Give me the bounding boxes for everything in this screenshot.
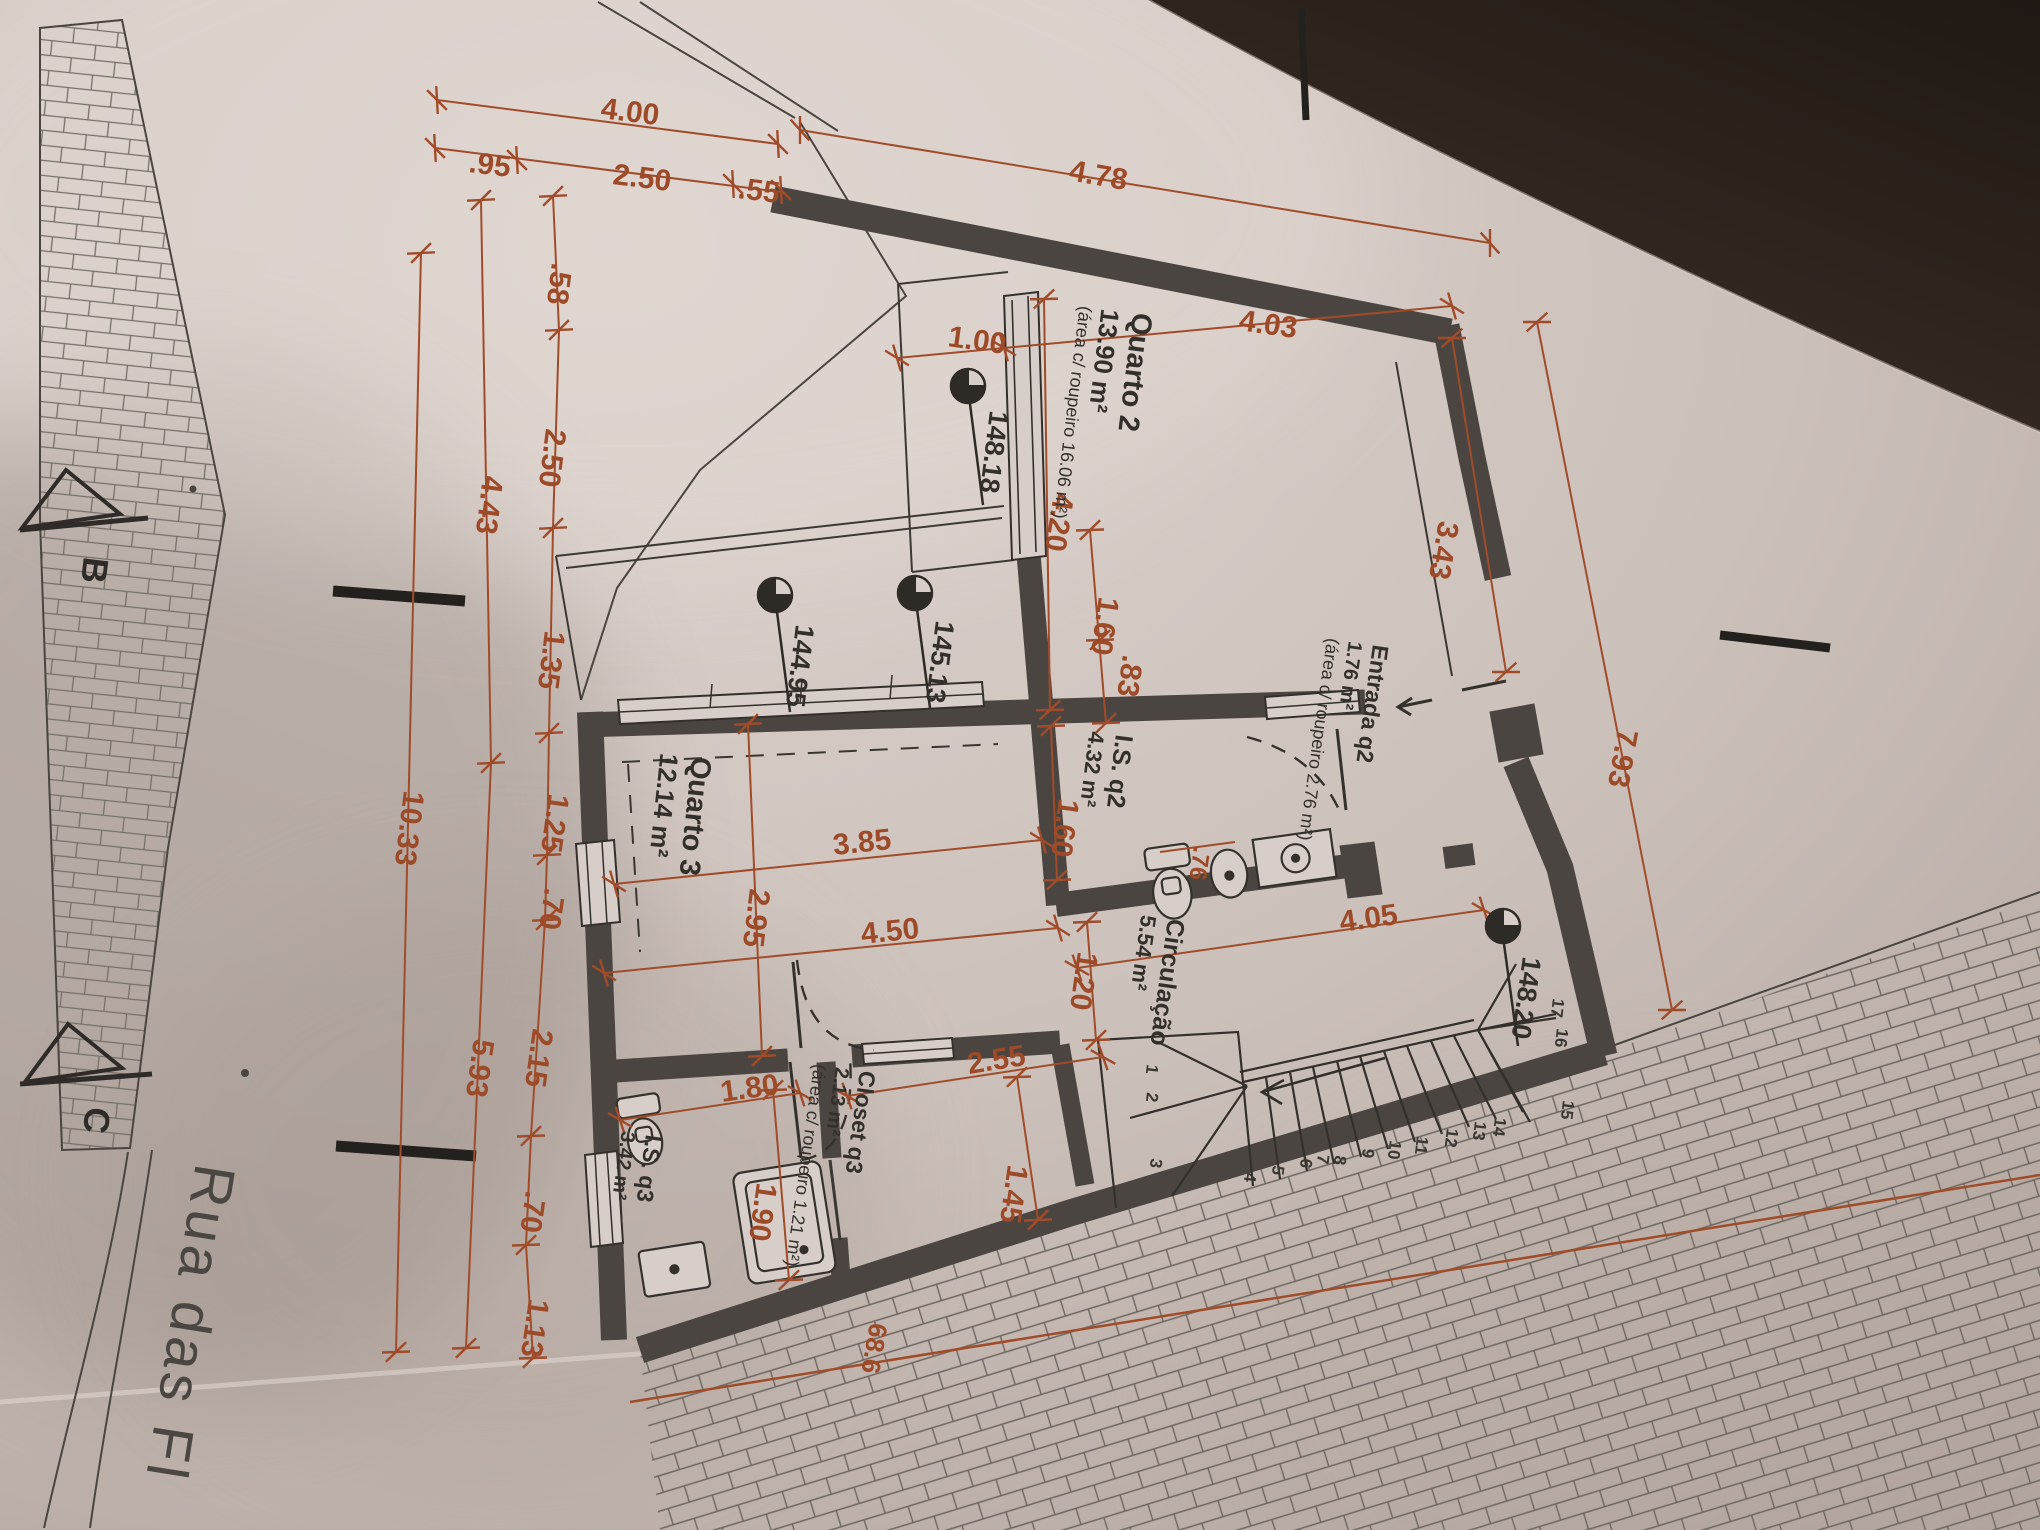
section-letter-B: B xyxy=(73,555,117,586)
wall-entrada-column xyxy=(1340,842,1382,898)
room-label-i-s-q3: I.S. q33.42 m² xyxy=(607,1130,667,1206)
dimension-label: .58 xyxy=(540,261,578,306)
dimension-label: 4.43 xyxy=(469,474,509,536)
dimension-label: 3.85 xyxy=(831,823,893,862)
wall-entry-column xyxy=(1490,704,1543,762)
photographed-floor-plan: Planta de piso — desenho de arquitetura … xyxy=(0,0,2040,1530)
stair-step-number: 15 xyxy=(1557,1100,1578,1121)
dimension-label: 4.00 xyxy=(599,92,661,132)
elevation-circle xyxy=(898,576,932,610)
dimension-label: 1.35 xyxy=(531,629,571,691)
dimension-label: .95 xyxy=(467,146,512,184)
section-letter-C: C xyxy=(75,1105,119,1136)
toilet-cistern xyxy=(1144,843,1191,871)
dimension-label: .55 xyxy=(736,172,781,210)
floor-plan-drawing: 4.00.952.50.554.78.582.501.351.25.702.15… xyxy=(0,0,2040,1530)
elevation-circle xyxy=(1486,909,1520,943)
room-label-i-s-q2: I.S. q24.32 m² xyxy=(1075,730,1138,812)
elevation-circle xyxy=(758,578,792,612)
dimension-label: 2.50 xyxy=(532,427,572,489)
dimension-label: 4.50 xyxy=(859,912,921,951)
elevation-circle xyxy=(951,369,985,403)
dimension-label: .70 xyxy=(513,1189,551,1235)
dimension-label: 2.95 xyxy=(736,887,776,949)
dimension-label: .76 xyxy=(1183,845,1214,882)
dimension-label: 2.50 xyxy=(611,158,673,198)
stair-step-number: 13 xyxy=(1469,1121,1490,1142)
stair-step-number: 11 xyxy=(1411,1136,1432,1156)
stair-step-number: 12 xyxy=(1441,1128,1462,1149)
stair-step-number: 17 xyxy=(1547,998,1568,1019)
dimension-label: .70 xyxy=(532,886,570,932)
stair-step-number: 14 xyxy=(1489,1117,1510,1139)
dimension-label: .83 xyxy=(1110,653,1148,699)
stair-step-number: 16 xyxy=(1551,1028,1572,1049)
stair-step-number: 10 xyxy=(1384,1140,1405,1161)
